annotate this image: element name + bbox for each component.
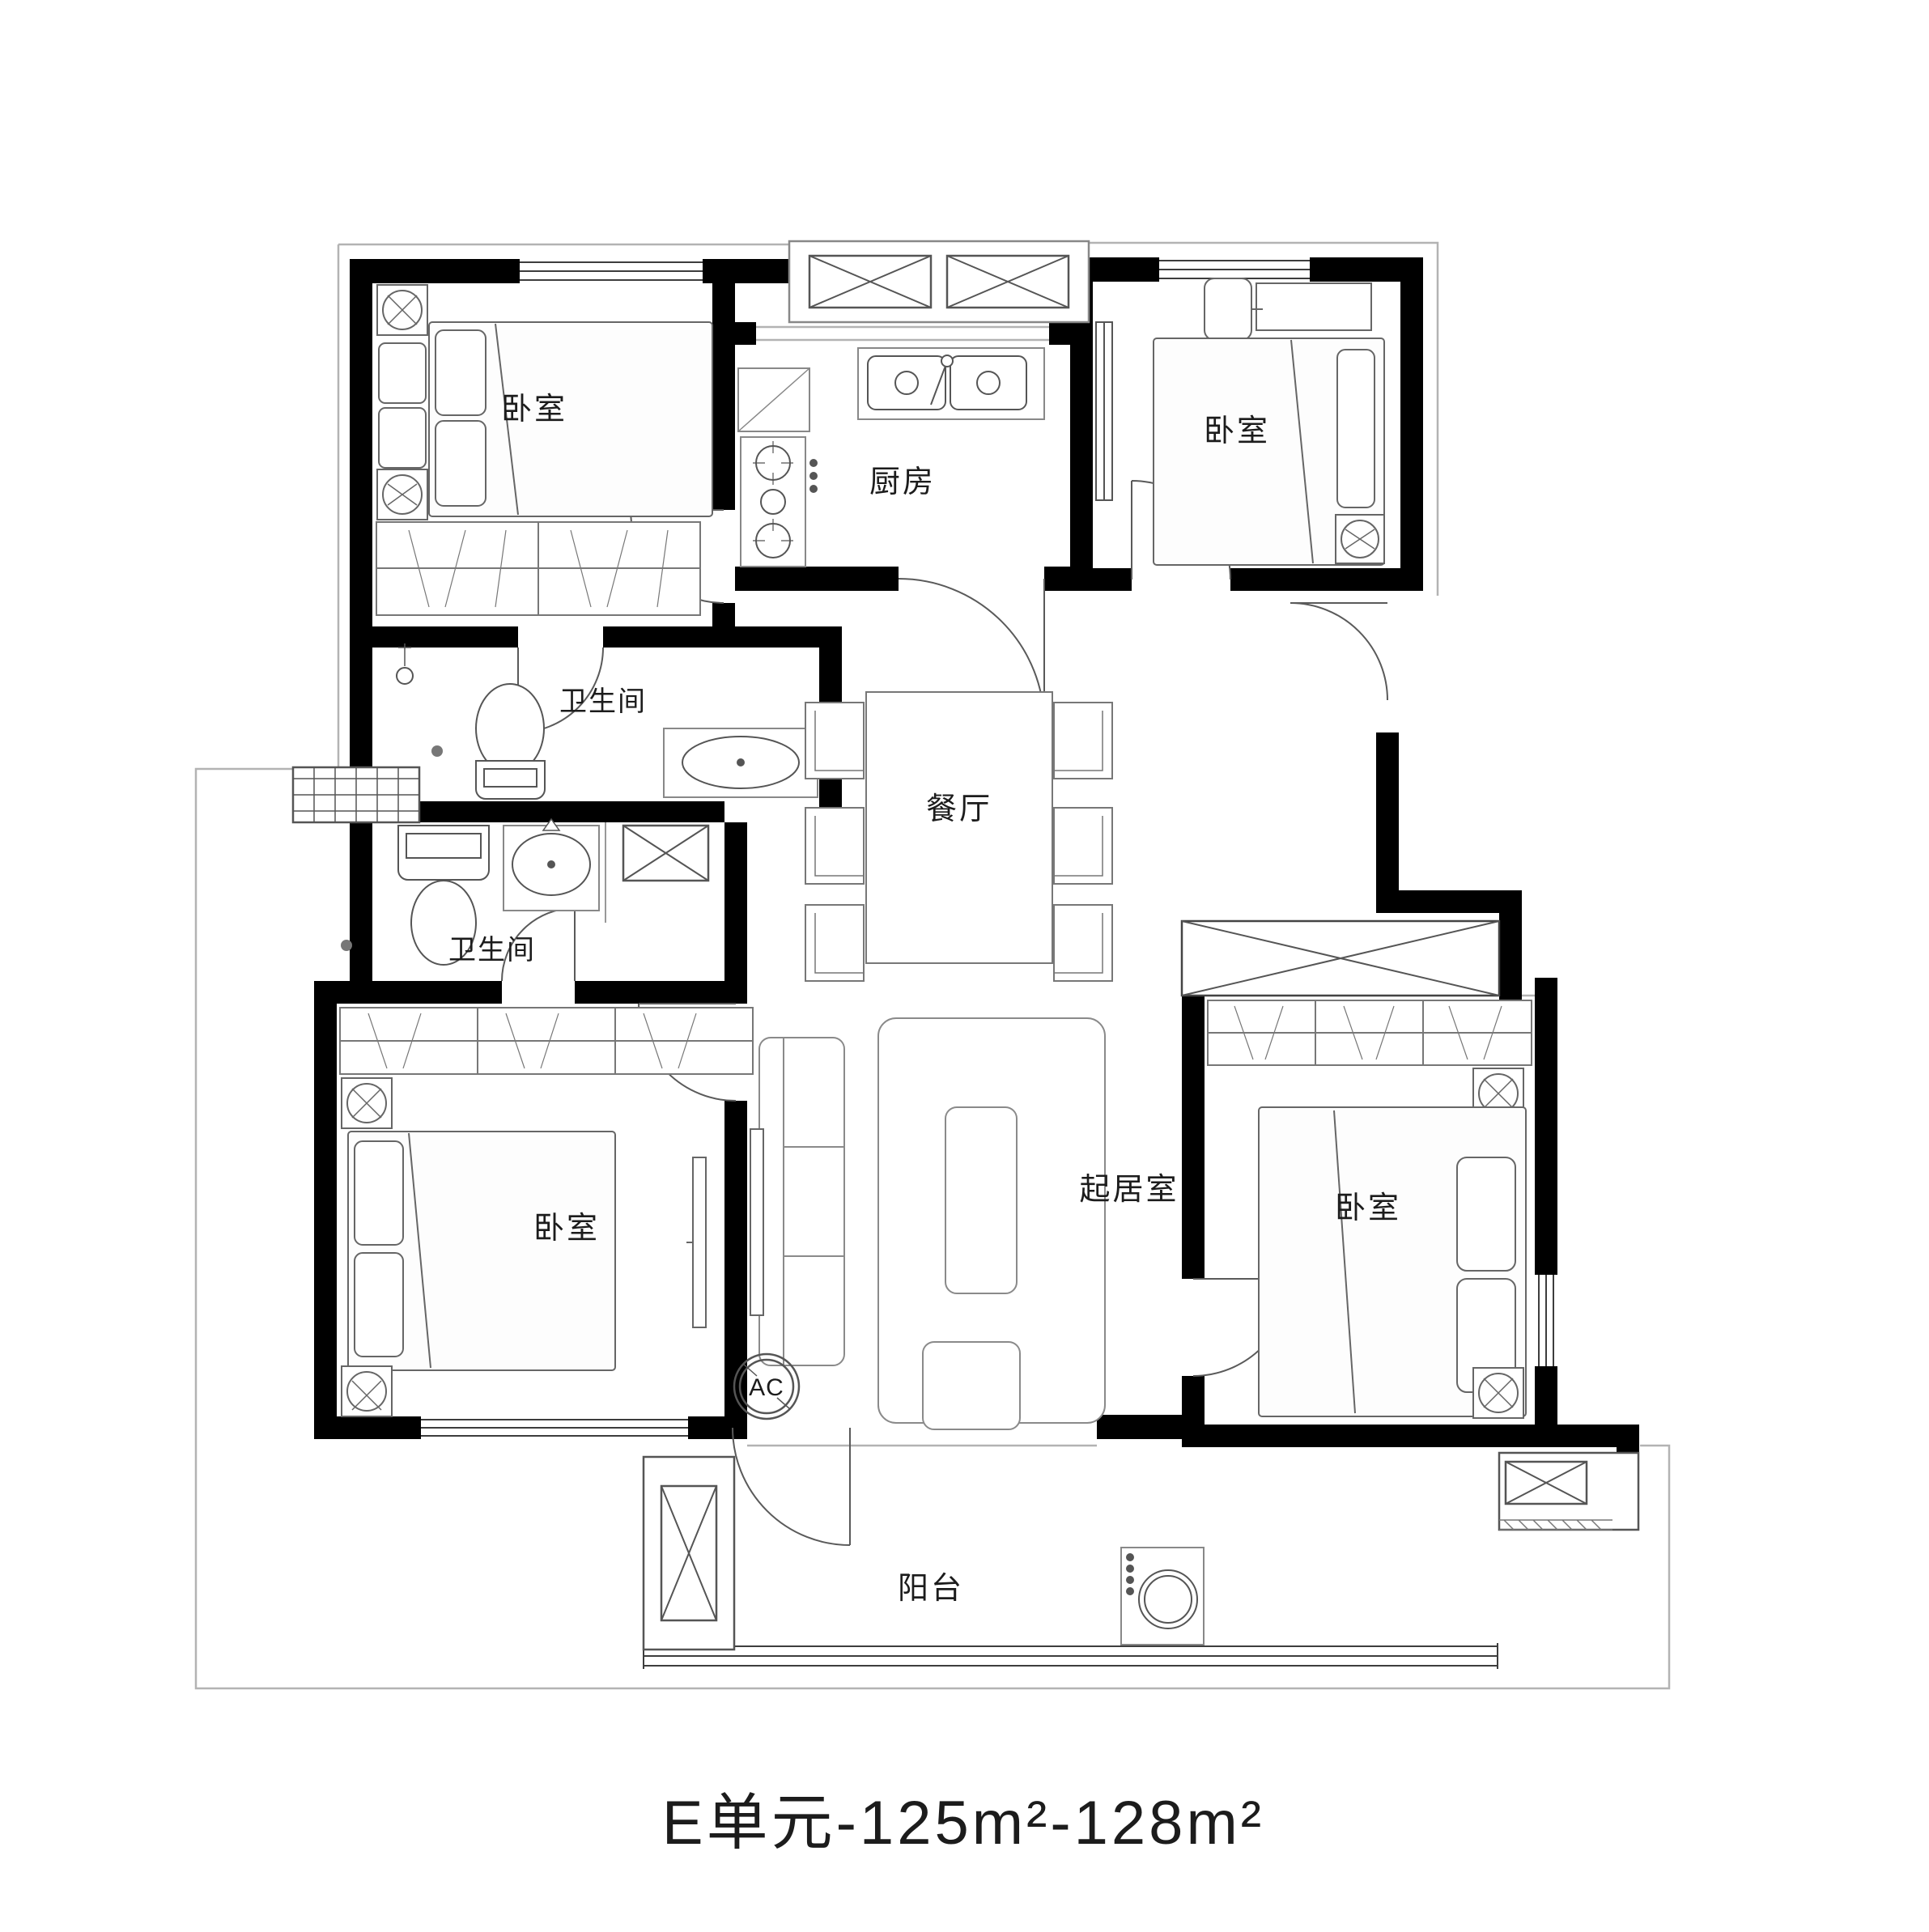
- bathroom-upper-fixtures: [397, 643, 818, 799]
- room-label-bedroom-nw: 卧室: [501, 393, 567, 427]
- bedroom-nw-furniture: [376, 285, 712, 615]
- room-label-dining: 餐厅: [926, 792, 992, 826]
- floor-plan-page: AC 卧室 卧室 厨房 卫生间 卫生间 餐厅 起居室 卧室 卧室 阳台 E单元-…: [0, 0, 1929, 1932]
- room-label-bathroom-lower: 卫生间: [448, 935, 536, 966]
- dining-table: [866, 692, 1052, 963]
- hatched-column: [293, 767, 419, 822]
- living-room-furniture: [750, 1018, 1105, 1429]
- tv-bedroom-sw: [693, 1157, 706, 1327]
- room-label-bedroom-ne: 卧室: [1204, 414, 1270, 448]
- kitchen-fixtures: [738, 348, 1044, 567]
- dining-set: [805, 692, 1112, 981]
- ottoman: [923, 1342, 1020, 1429]
- room-label-kitchen: 厨房: [869, 465, 936, 499]
- room-label-bedroom-sw: 卧室: [533, 1212, 600, 1246]
- ac-label: AC: [749, 1374, 784, 1401]
- room-label-balcony: 阳台: [898, 1572, 964, 1606]
- balcony-fixtures: [1121, 1548, 1204, 1645]
- room-label-bedroom-se: 卧室: [1335, 1191, 1401, 1225]
- floor-plan-svg: AC 卧室 卧室 厨房 卫生间 卫生间 餐厅 起居室 卧室 卧室 阳台 E单元-…: [0, 0, 1929, 1932]
- window-seat-ne: [1096, 322, 1112, 500]
- room-label-bathroom-upper: 卫生间: [559, 686, 647, 717]
- tv-living: [750, 1129, 763, 1315]
- wardrobe-sw: [340, 1008, 753, 1074]
- plan-title: E单元-125m²-128m²: [662, 1789, 1264, 1858]
- room-label-living: 起居室: [1079, 1173, 1179, 1207]
- closet-nw: [376, 522, 700, 615]
- wardrobe-se: [1208, 1000, 1532, 1065]
- sofa: [759, 1038, 844, 1365]
